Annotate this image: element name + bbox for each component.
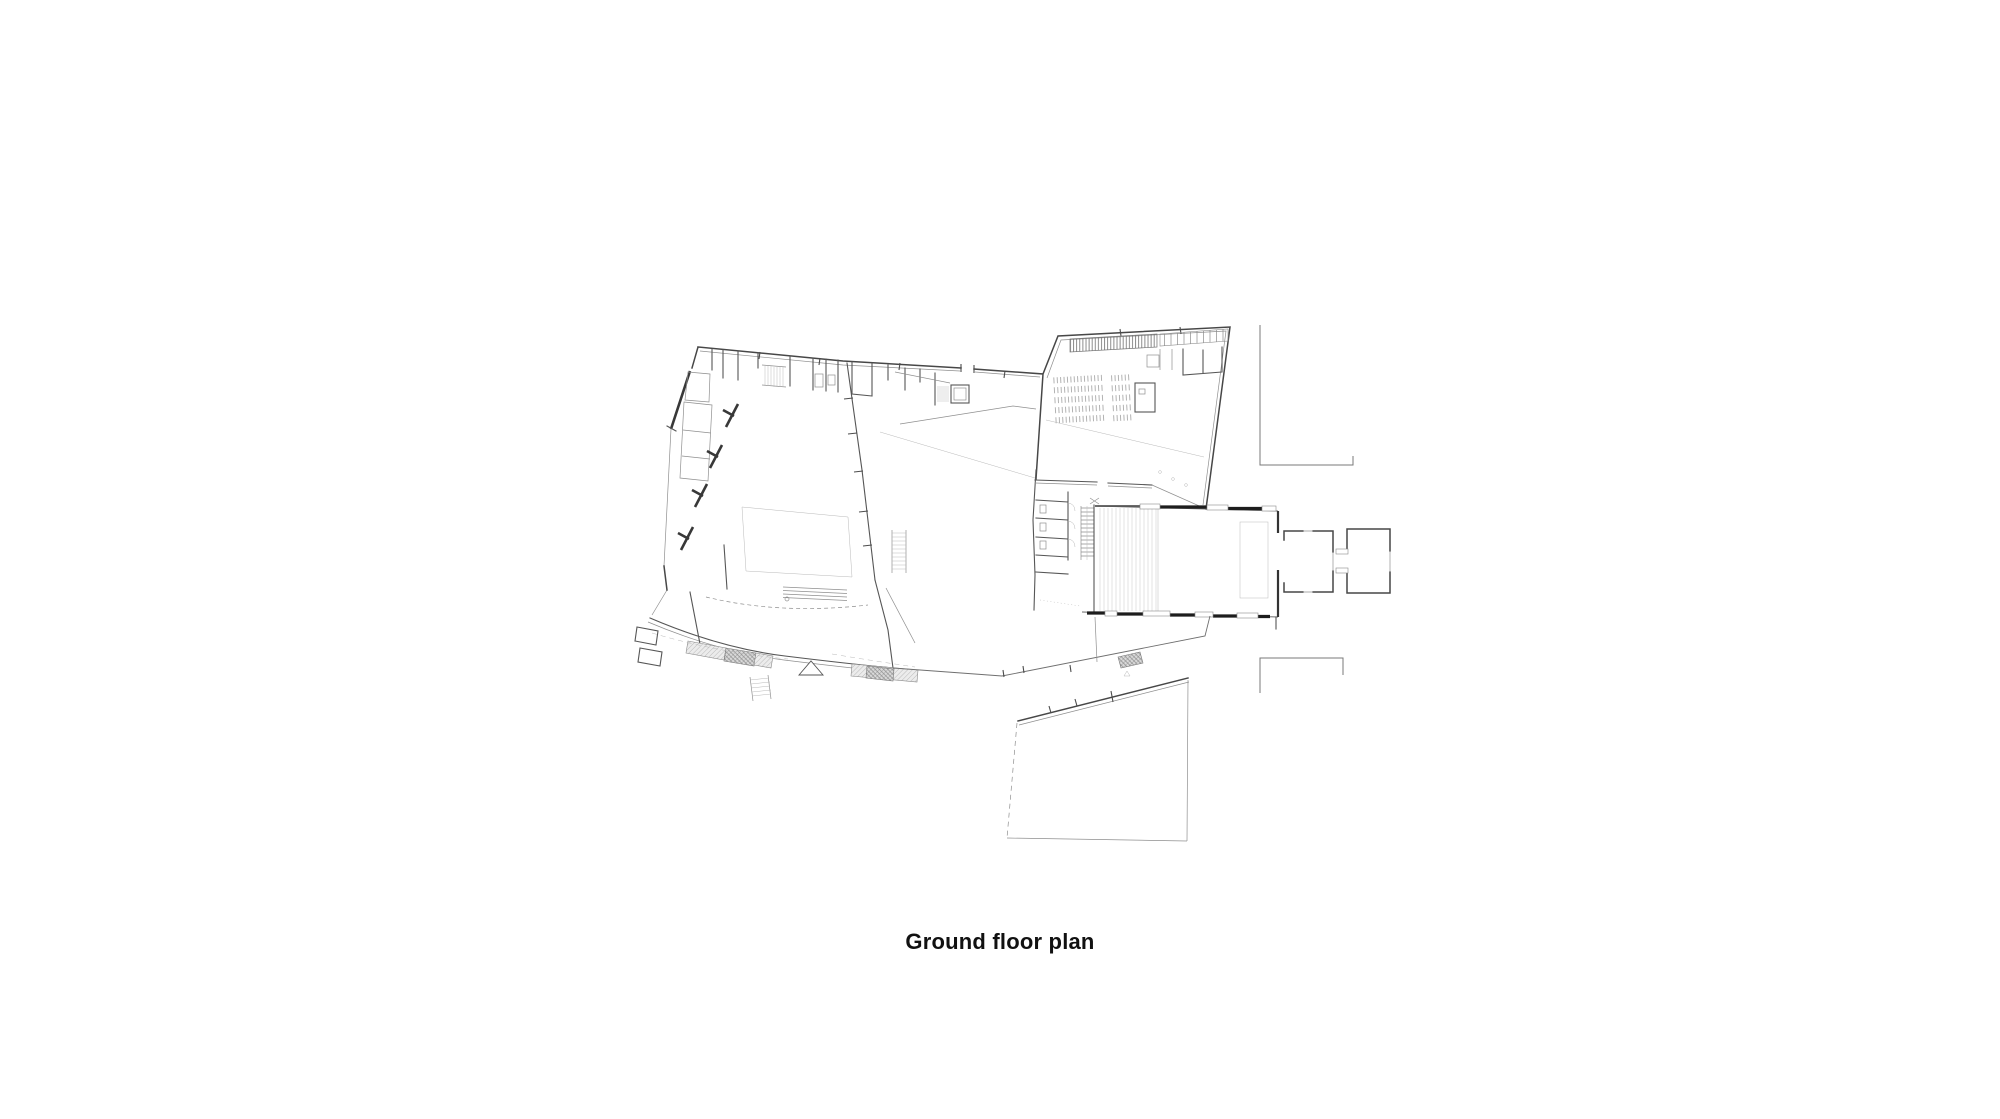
auditorium-wing	[1046, 329, 1228, 486]
stair-main	[1081, 506, 1094, 560]
ramp-hatch	[686, 641, 726, 660]
plaza-hatch	[1118, 652, 1143, 668]
toilet-block	[1033, 470, 1278, 610]
neighbor-wall-fragment-north	[1260, 325, 1353, 465]
central-core	[880, 372, 1036, 573]
stair-secondary	[892, 530, 906, 573]
neighbor-wall-fragment-south	[1260, 658, 1343, 693]
entrance-steps	[750, 675, 771, 701]
fence-line	[893, 616, 1210, 676]
seating-rows	[1052, 373, 1133, 424]
perimeter-walls	[648, 327, 1230, 672]
west-wing-rooms	[635, 372, 738, 666]
chapel-porch	[1284, 529, 1390, 593]
drawing-caption: Ground floor plan	[0, 929, 2000, 955]
coat-rack-hatch-2	[1160, 329, 1228, 346]
garden-plot	[1007, 678, 1189, 841]
coat-rack-hatch	[1070, 334, 1157, 352]
page: { "page": { "background_color": "#ffffff…	[0, 0, 2000, 1119]
entrance-triangle	[799, 661, 823, 675]
south-facade	[686, 641, 918, 701]
north-rooms	[712, 349, 935, 405]
great-hall	[1082, 504, 1278, 629]
hall-floor-lines	[1100, 508, 1156, 611]
